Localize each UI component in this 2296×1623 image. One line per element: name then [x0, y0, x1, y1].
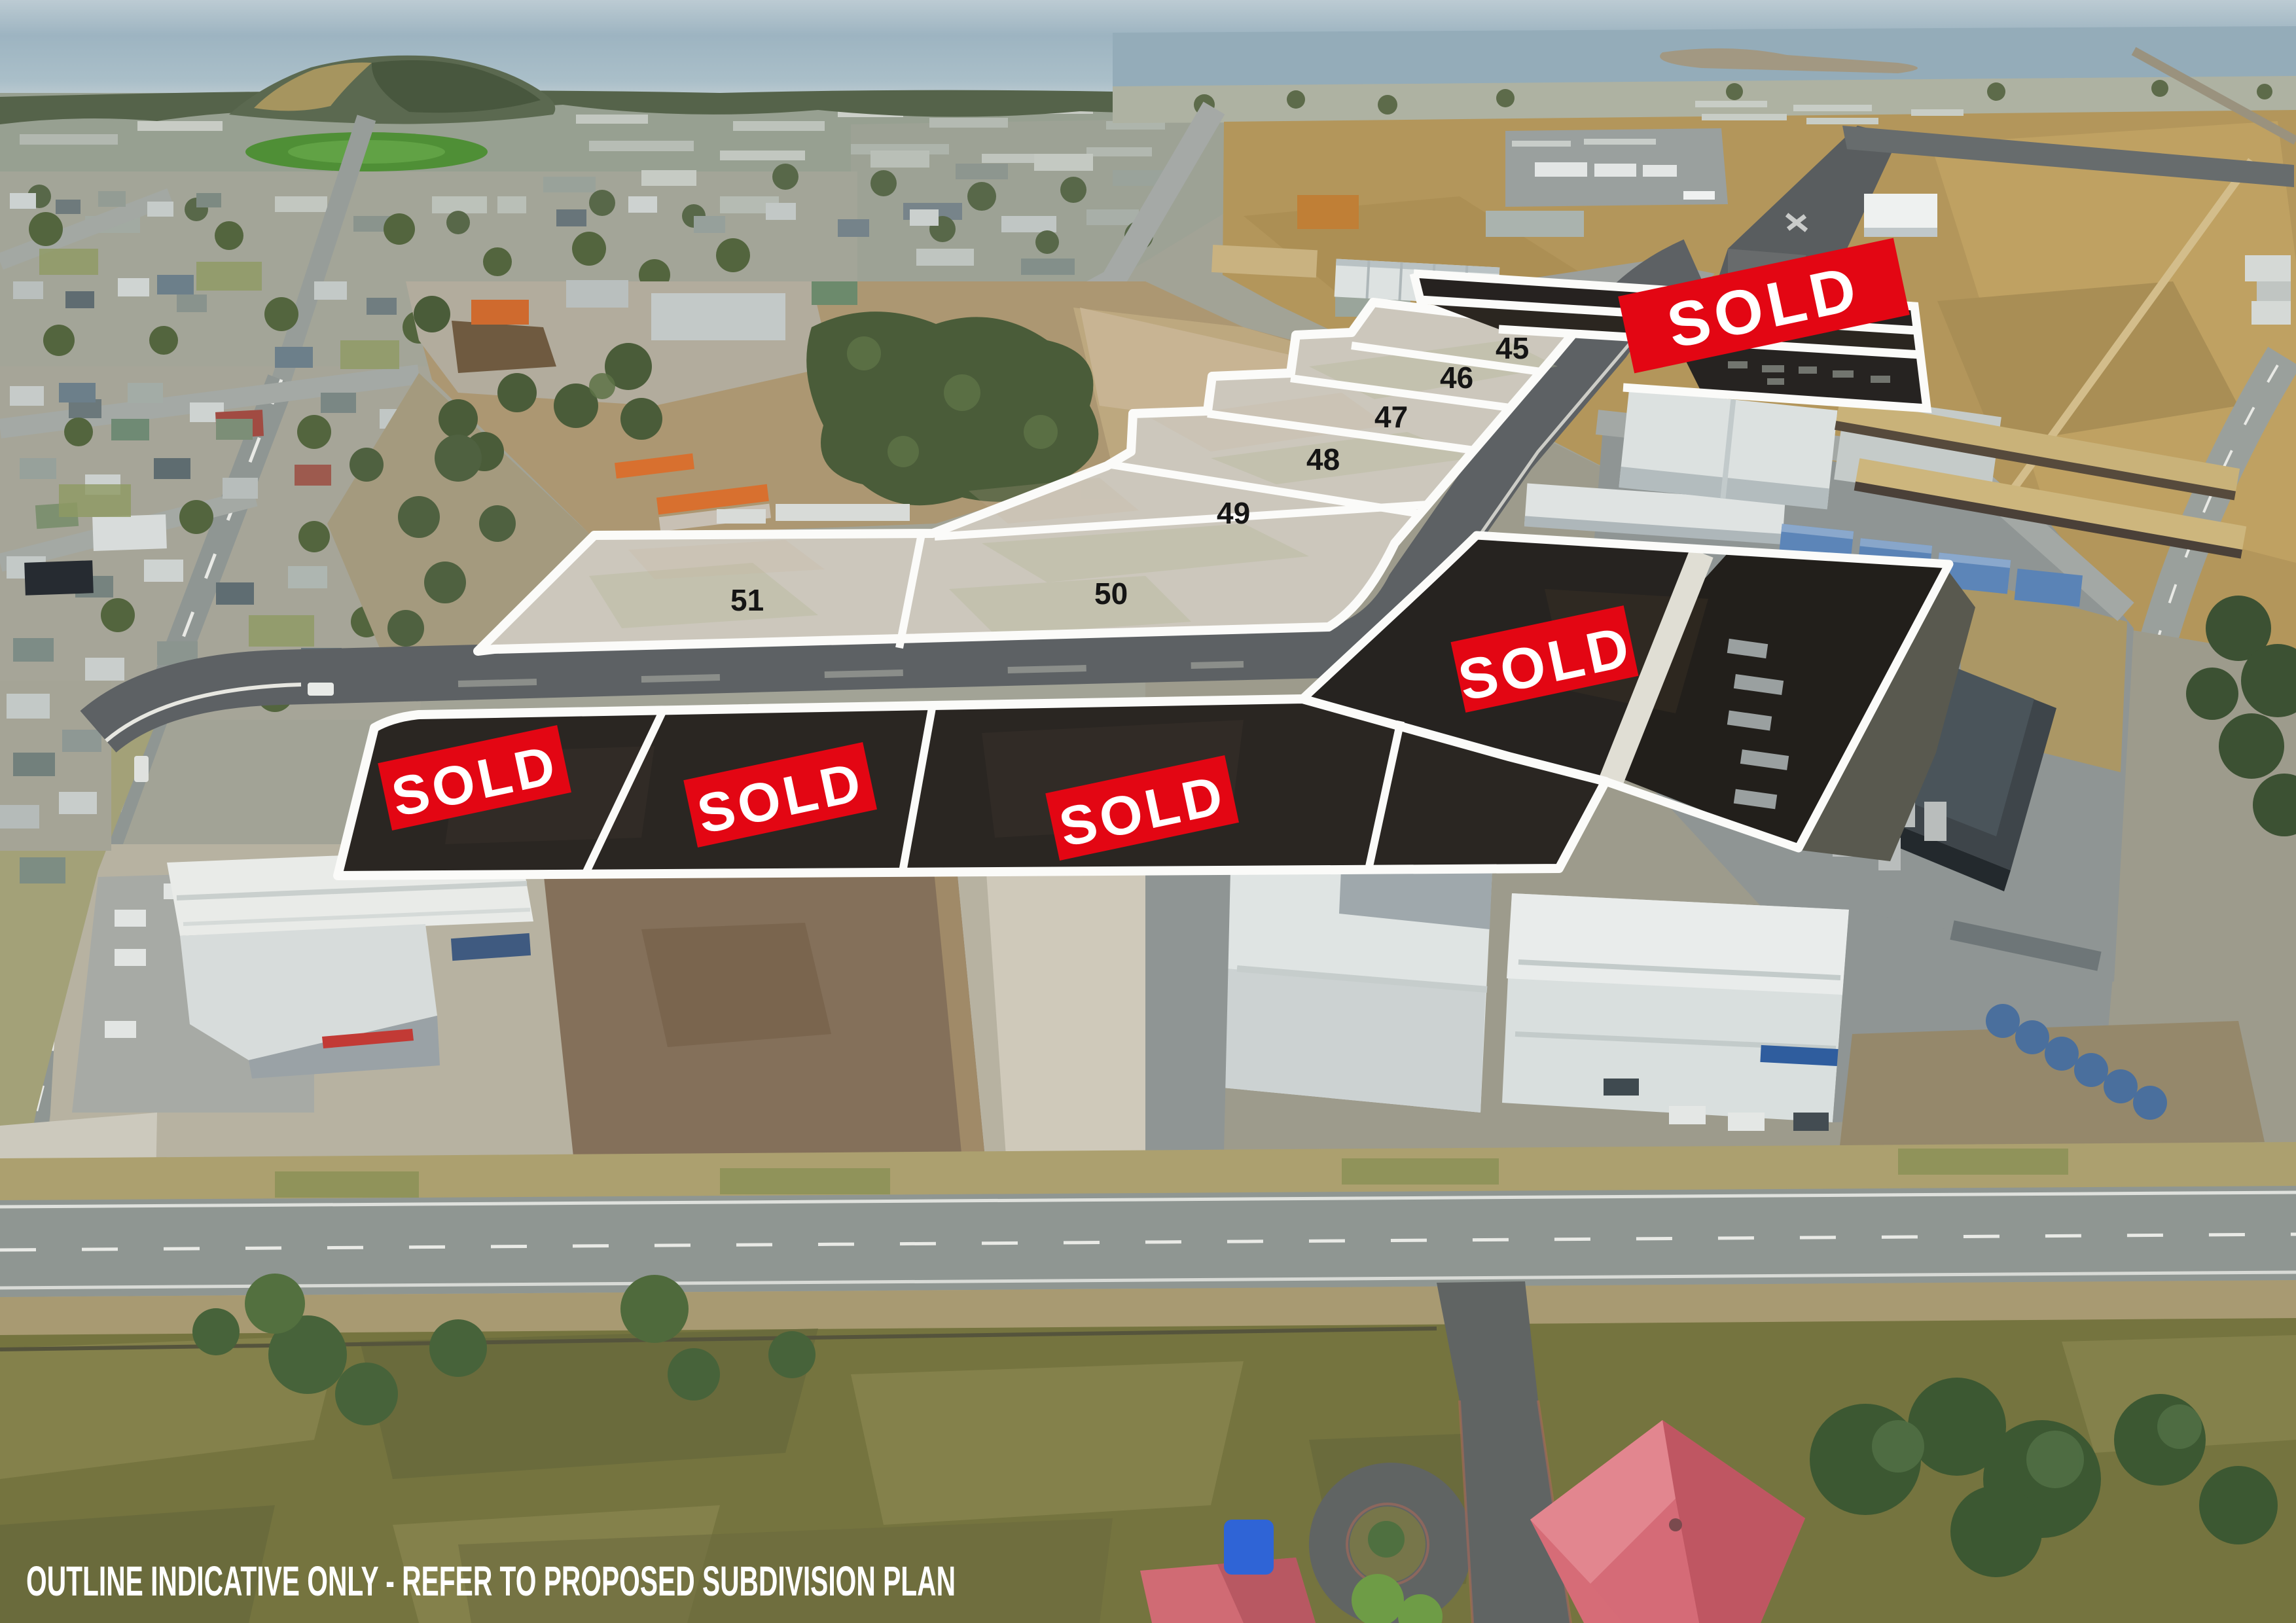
- svg-text:49: 49: [1217, 496, 1250, 530]
- svg-text:50: 50: [1094, 577, 1128, 611]
- svg-text:45: 45: [1496, 331, 1529, 365]
- svg-text:46: 46: [1440, 361, 1473, 395]
- svg-text:OUTLINE INDICATIVE ONLY - REFE: OUTLINE INDICATIVE ONLY - REFER TO PROPO…: [26, 1558, 956, 1605]
- svg-text:47: 47: [1374, 400, 1408, 434]
- svg-text:48: 48: [1306, 442, 1340, 476]
- svg-text:51: 51: [730, 583, 764, 617]
